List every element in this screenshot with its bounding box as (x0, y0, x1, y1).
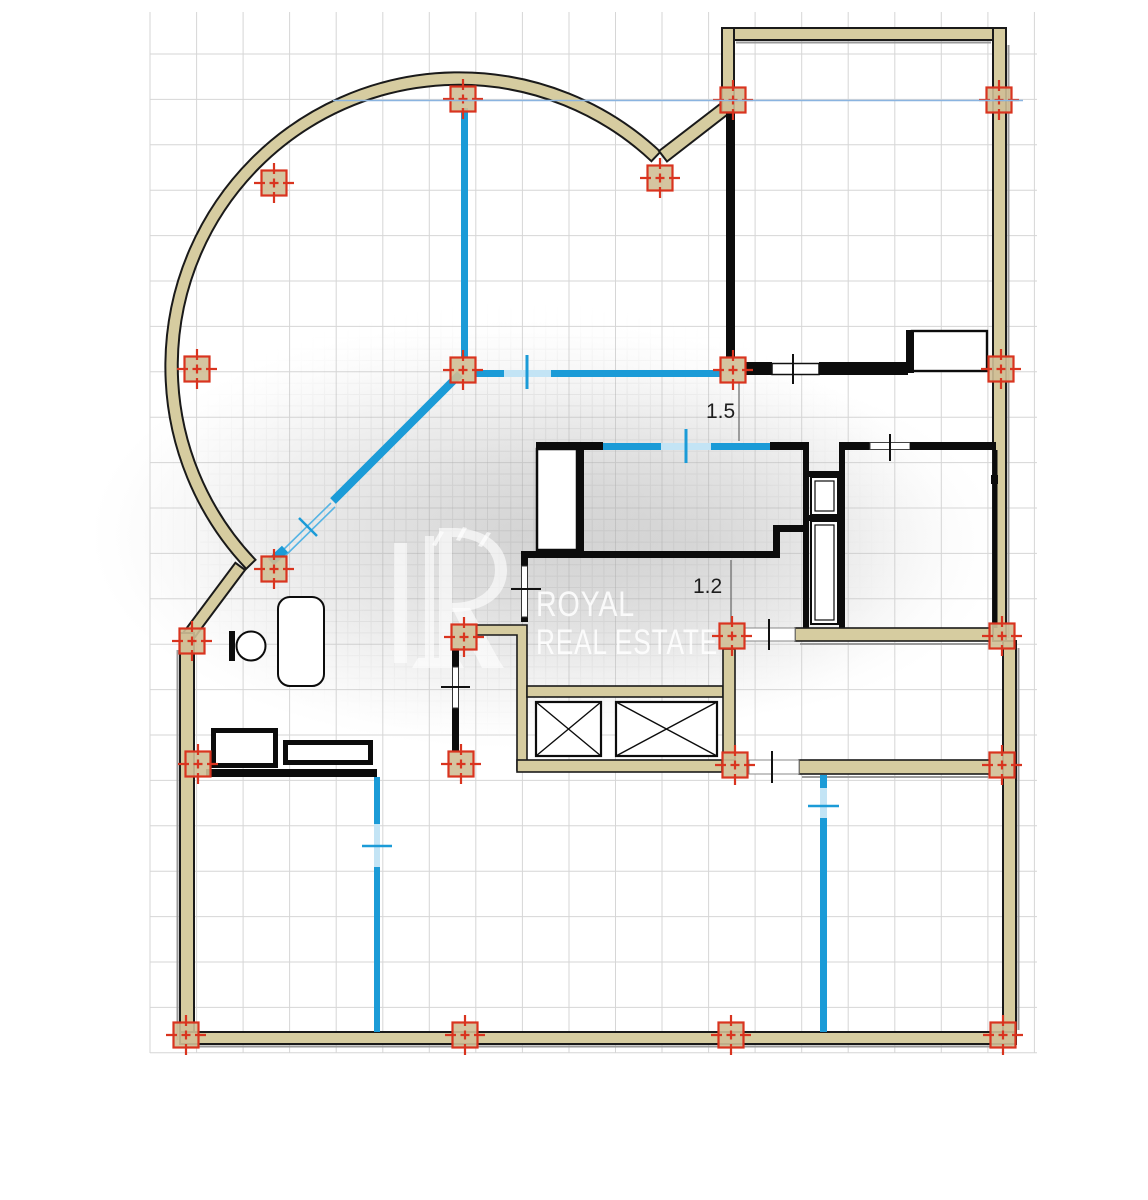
svg-text:1.5: 1.5 (706, 400, 735, 423)
svg-text:ROYAL: ROYAL (536, 585, 635, 624)
svg-text:1.2: 1.2 (693, 575, 722, 598)
svg-text:REAL ESTATE: REAL ESTATE (536, 623, 718, 662)
